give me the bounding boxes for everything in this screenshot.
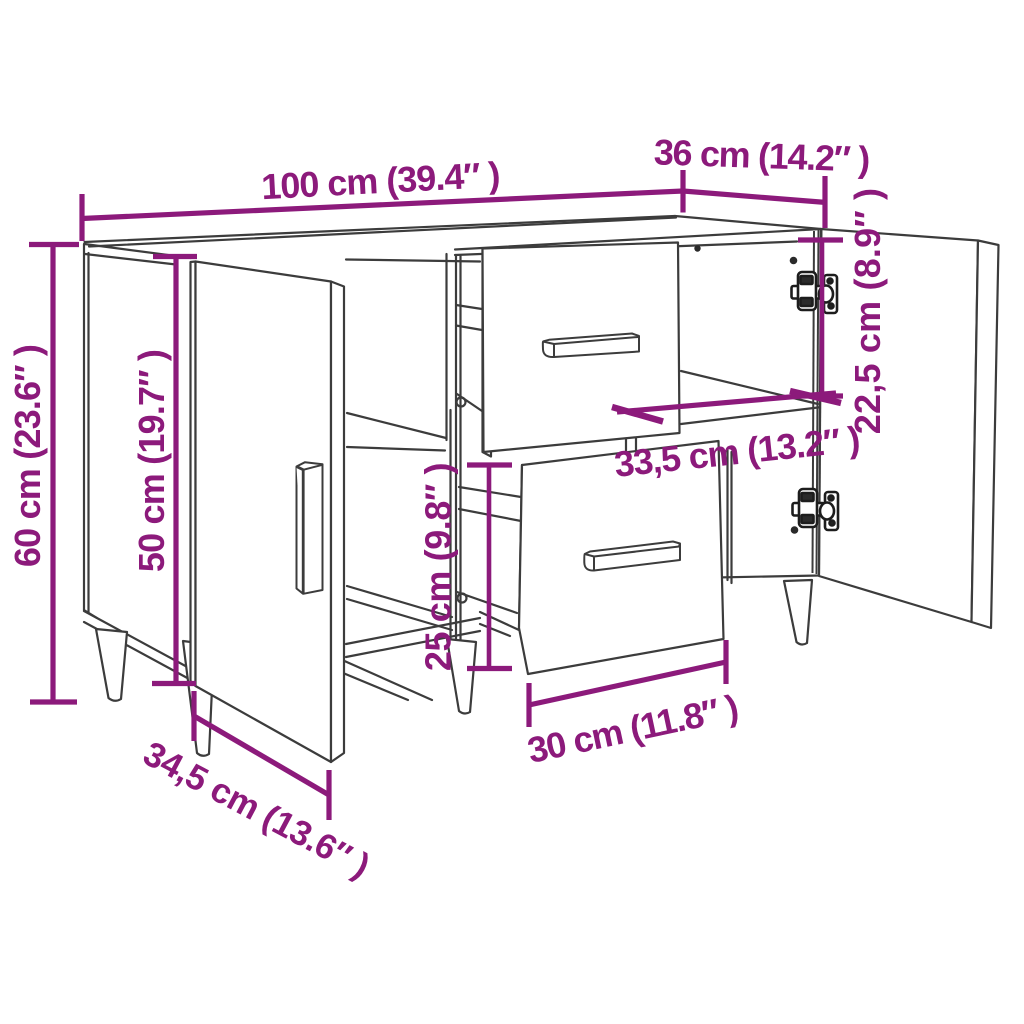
svg-text:50 cm (19.7″ ): 50 cm (19.7″ )	[131, 350, 172, 572]
svg-text:25 cm (9.8″ ): 25 cm (9.8″ )	[418, 463, 459, 671]
svg-text:36 cm (14.2″ ): 36 cm (14.2″ )	[653, 131, 870, 179]
svg-text:22,5 cm (8.9″ ): 22,5 cm (8.9″ )	[847, 188, 888, 434]
svg-text:60 cm (23.6″ ): 60 cm (23.6″ )	[7, 345, 48, 567]
